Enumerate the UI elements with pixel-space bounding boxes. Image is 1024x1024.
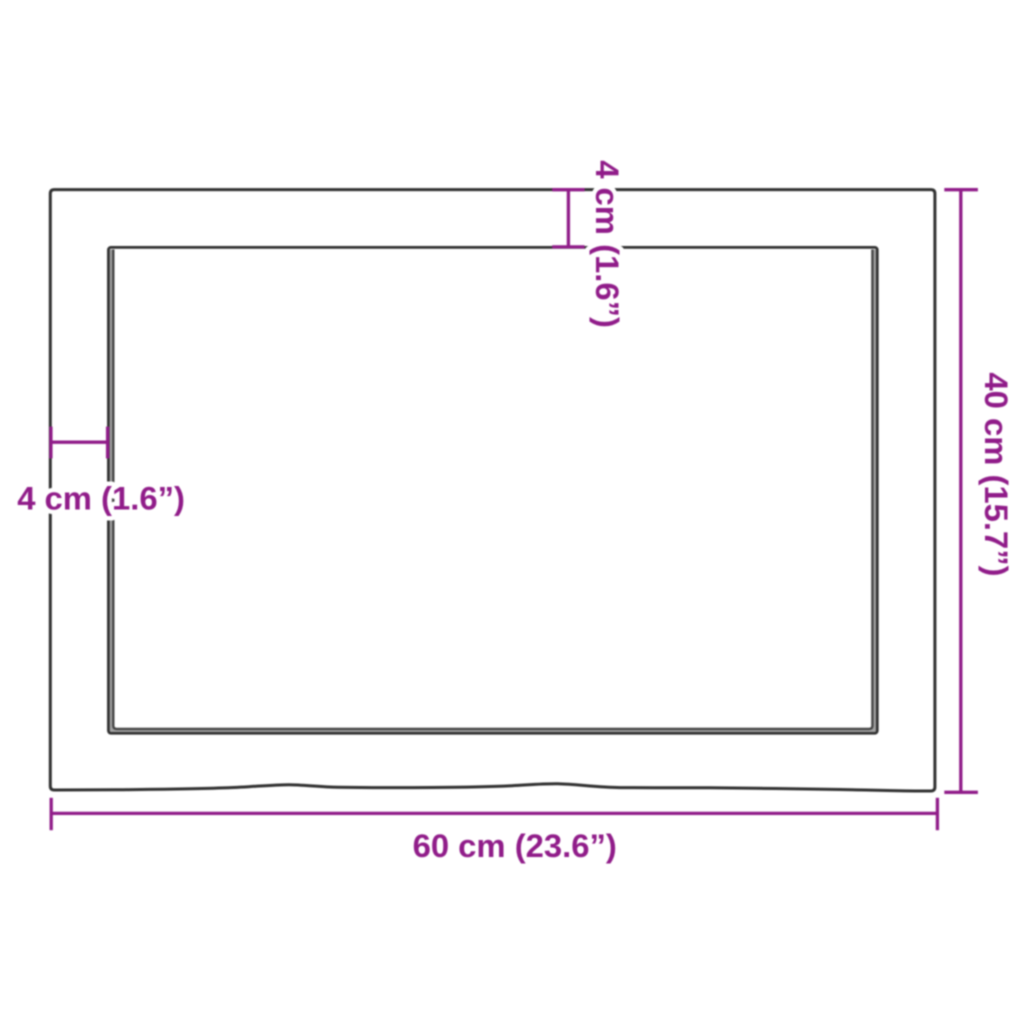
svg-text:4 cm (1.6”): 4 cm (1.6”): [17, 480, 185, 517]
svg-text:60 cm (23.6”): 60 cm (23.6”): [413, 827, 617, 864]
svg-text:4 cm (1.6”): 4 cm (1.6”): [589, 160, 626, 328]
svg-text:40 cm (15.7”): 40 cm (15.7”): [978, 372, 1015, 576]
